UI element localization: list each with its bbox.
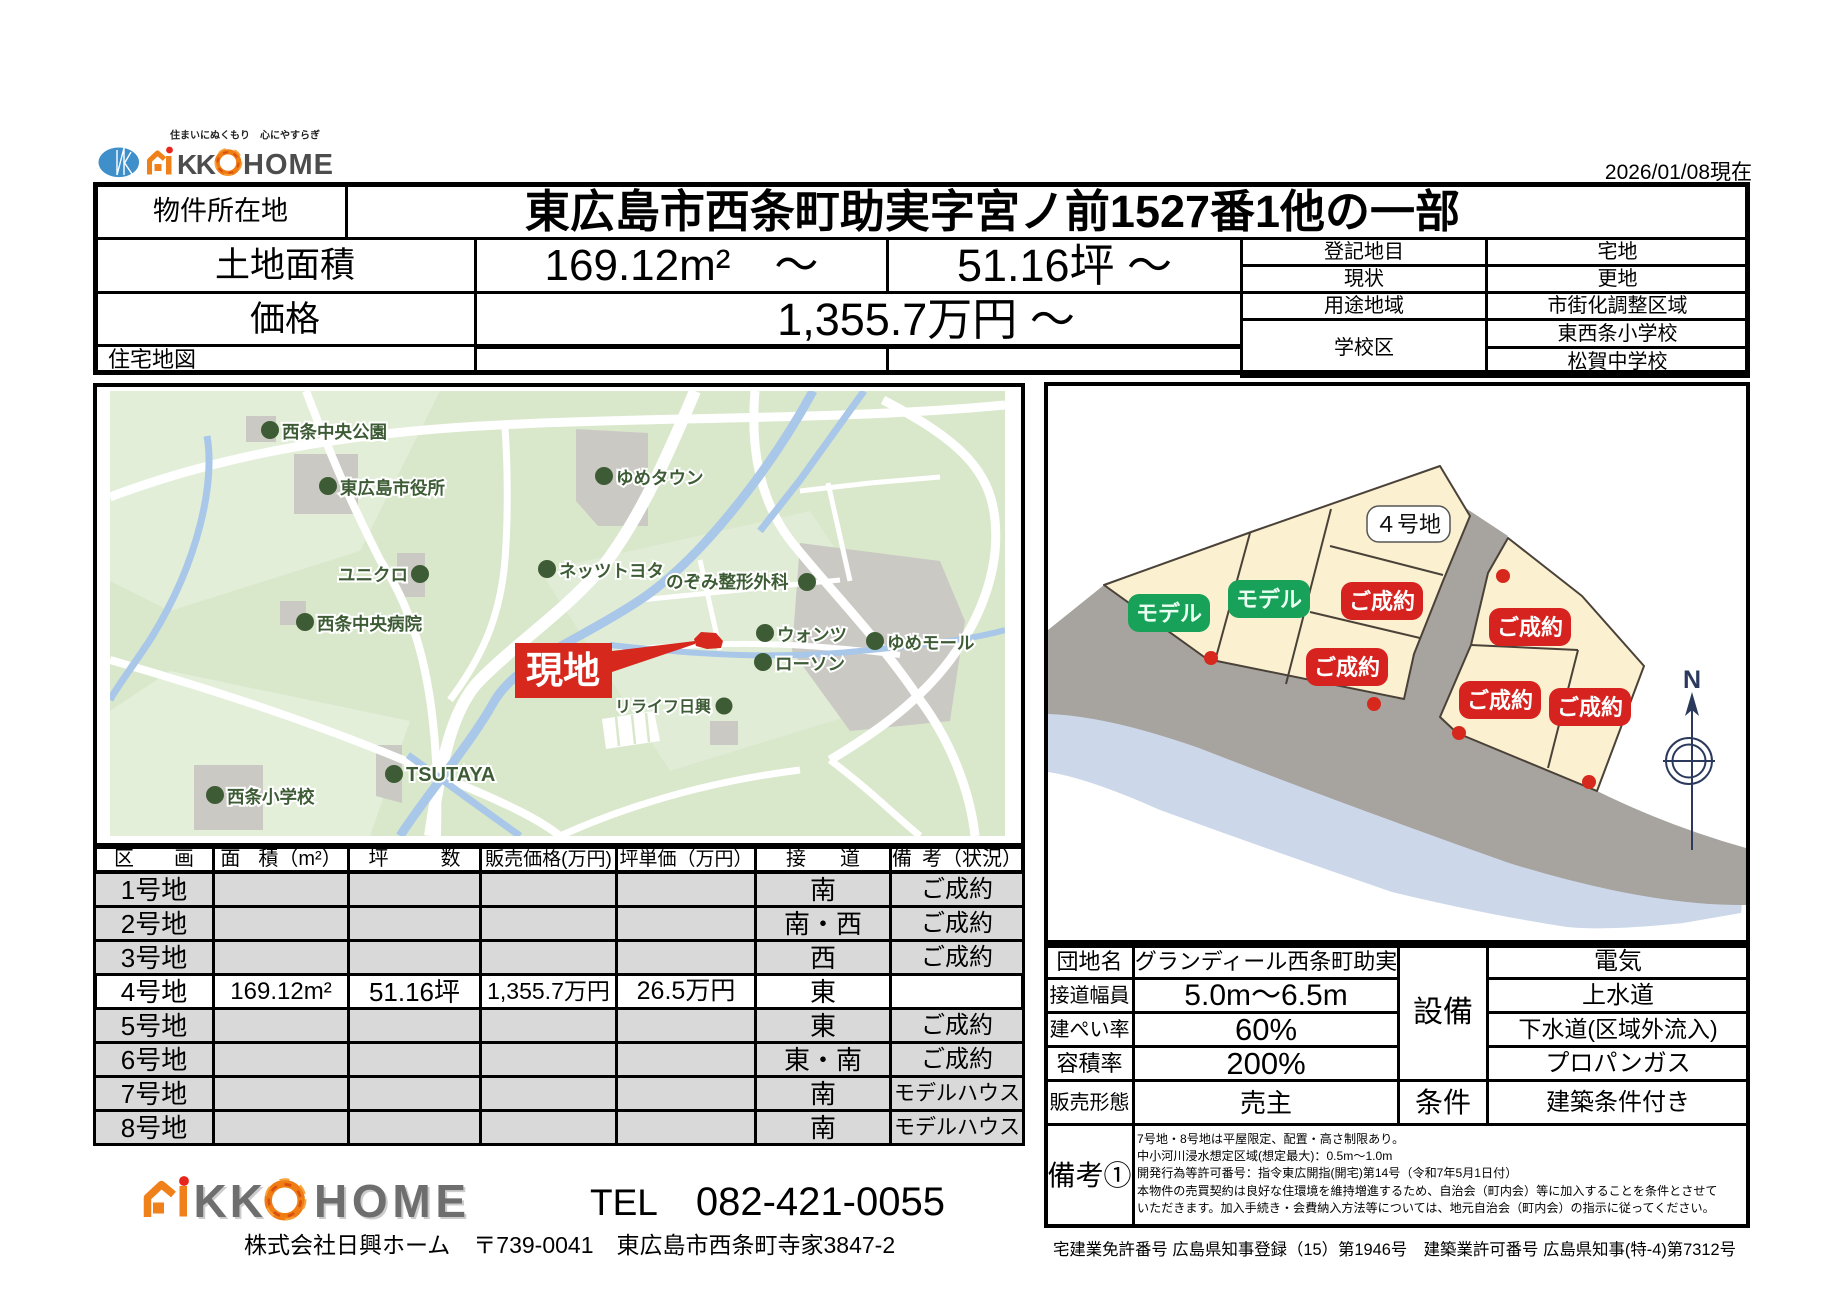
svg-text:モデル: モデル — [1136, 601, 1202, 626]
svg-text:４号地: ４号地 — [1375, 512, 1441, 537]
svg-text:ネッツトヨタ: ネッツトヨタ — [559, 561, 664, 581]
svg-text:ご成約: ご成約 — [1557, 695, 1623, 720]
svg-text:ゆめタウン: ゆめタウン — [616, 468, 704, 488]
svg-text:モデル: モデル — [1236, 587, 1302, 612]
svg-text:ご成約: ご成約 — [1349, 589, 1415, 614]
svg-text:のぞみ整形外科: のぞみ整形外科 — [666, 572, 789, 592]
svg-text:現地: 現地 — [526, 650, 600, 691]
svg-text:ご成約: ご成約 — [1467, 688, 1533, 713]
svg-text:西条中央公園: 西条中央公園 — [282, 422, 387, 442]
svg-text:ご成約: ご成約 — [1314, 655, 1380, 680]
svg-text:HOME: HOME — [314, 1175, 471, 1224]
svg-text:N: N — [1683, 666, 1701, 694]
svg-text:ご成約: ご成約 — [1497, 615, 1563, 640]
svg-text:東広島市役所: 東広島市役所 — [340, 478, 445, 498]
svg-text:ローソン: ローソン — [775, 654, 845, 674]
svg-text:KK: KK — [194, 1175, 266, 1224]
svg-text:ゆめモール: ゆめモール — [887, 633, 975, 653]
svg-text:ユニクロ: ユニクロ — [338, 565, 408, 585]
svg-text:住まいにぬくもり 心にやすらぎ: 住まいにぬくもり 心にやすらぎ — [170, 129, 320, 142]
svg-text:ウォンツ: ウォンツ — [777, 625, 847, 645]
svg-text:KK: KK — [177, 149, 216, 180]
svg-text:リライフ日興: リライフ日興 — [615, 697, 711, 716]
svg-text:TSUTAYA: TSUTAYA — [406, 764, 495, 786]
svg-text:HOME: HOME — [243, 149, 334, 181]
svg-text:西条小学校: 西条小学校 — [227, 787, 315, 807]
svg-text:西条中央病院: 西条中央病院 — [317, 614, 422, 634]
